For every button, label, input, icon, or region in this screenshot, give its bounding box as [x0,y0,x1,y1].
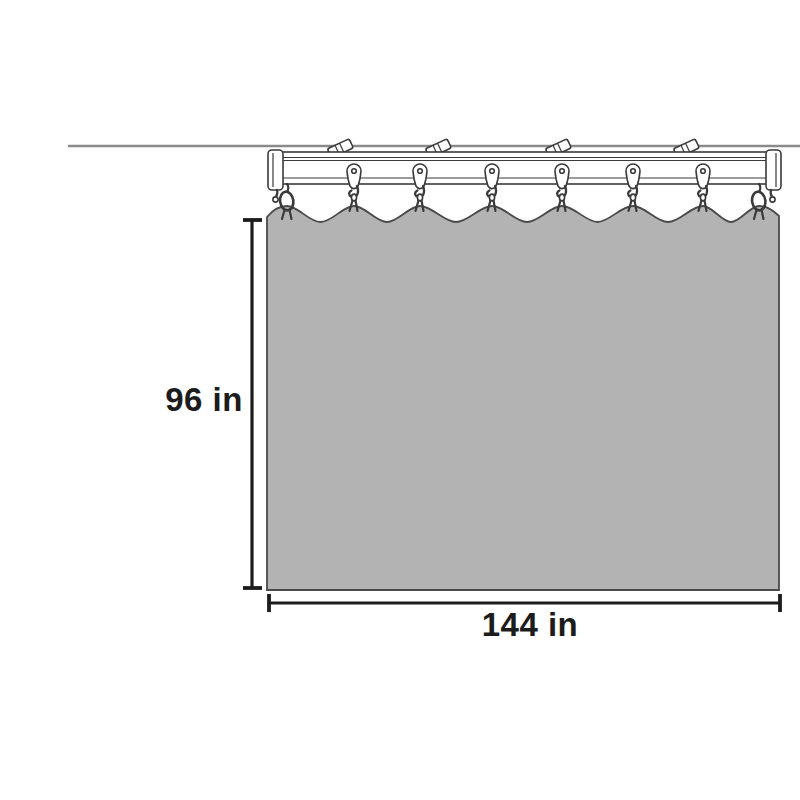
fabric-clips [350,194,707,211]
width-dimension-label: 144 in [482,606,579,643]
width-dimension: 144 in [269,594,780,643]
glider-hook-icon [347,164,361,197]
track-end-cap-right [766,150,781,202]
height-dimension: 96 in [165,220,262,588]
height-dimension-label: 96 in [165,381,243,418]
glider-hook-icon [485,164,499,197]
glider-hook-icon [555,164,569,197]
curtain-diagram: 96 in 144 in [0,0,800,800]
curtain-panel [267,206,779,590]
glider-hook-icon [696,164,710,197]
glider-hook-icon [413,164,427,197]
glider-hook-icon [626,164,640,197]
curtain-diagram-canvas: 96 in 144 in [0,0,800,800]
